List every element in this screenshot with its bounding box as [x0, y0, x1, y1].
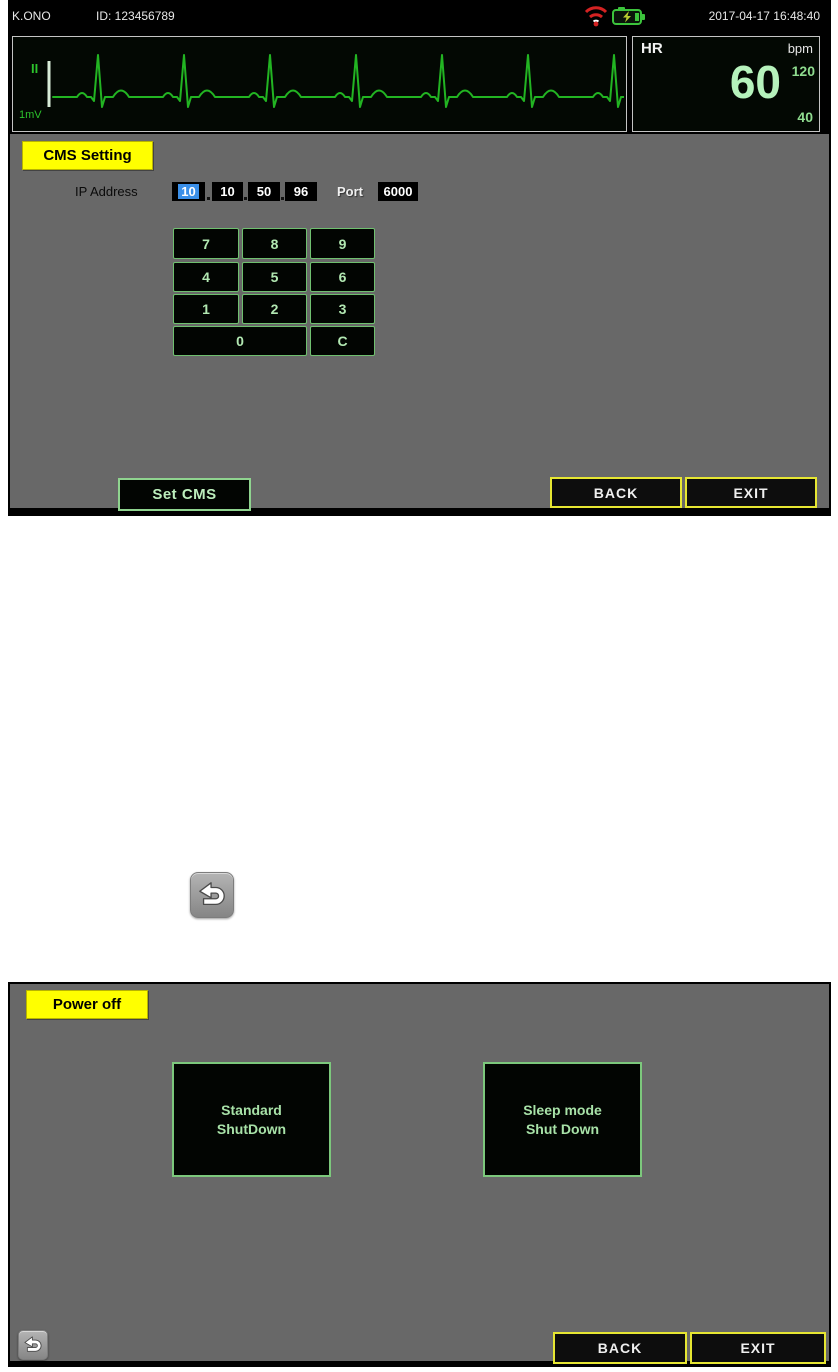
ecg-trace [13, 37, 624, 129]
ip-dot [244, 197, 247, 200]
keypad-key-6[interactable]: 6 [310, 262, 375, 292]
standard-shutdown-button[interactable]: Standard ShutDown [172, 1062, 331, 1177]
ip-octet-2[interactable]: 10 [212, 182, 243, 201]
ip-octet-4[interactable]: 96 [285, 182, 317, 201]
ip-dot [281, 197, 284, 200]
ecg-waveform-panel: II 1mV [12, 36, 627, 132]
hr-limit-high: 120 [792, 63, 815, 79]
keypad-key-8[interactable]: 8 [242, 228, 307, 259]
return-button[interactable] [190, 872, 234, 918]
patient-id: ID: 123456789 [96, 9, 175, 23]
sleep-shutdown-line2: Shut Down [526, 1120, 599, 1139]
keypad-key-7[interactable]: 7 [173, 228, 239, 259]
battery-icon [612, 6, 646, 26]
hr-unit: bpm [788, 41, 813, 56]
page-title: Power off [26, 990, 148, 1019]
keypad-key-4[interactable]: 4 [173, 262, 239, 292]
sleep-shutdown-line1: Sleep mode [523, 1101, 602, 1120]
keypad-key-0[interactable]: 0 [173, 326, 307, 356]
wifi-icon [584, 5, 608, 27]
keypad-key-3[interactable]: 3 [310, 294, 375, 324]
hr-value: 60 [730, 59, 781, 105]
return-arrow-icon [197, 880, 227, 910]
ip-address-label: IP Address [75, 184, 138, 199]
sleep-mode-shutdown-button[interactable]: Sleep mode Shut Down [483, 1062, 642, 1177]
back-button[interactable]: BACK [553, 1332, 687, 1364]
hr-label: HR [641, 40, 663, 57]
page-title: CMS Setting [22, 141, 153, 170]
datetime: 2017-04-17 16:48:40 [653, 9, 820, 23]
port-label: Port [337, 184, 363, 199]
return-arrow-icon [23, 1335, 43, 1355]
keypad-key-1[interactable]: 1 [173, 294, 239, 324]
keypad-key-5[interactable]: 5 [242, 262, 307, 292]
patient-name: K.ONO [12, 9, 51, 23]
hr-limit-low: 40 [797, 109, 813, 125]
hr-panel: HR bpm 60 120 40 [632, 36, 820, 132]
ip-octet-3[interactable]: 50 [248, 182, 280, 201]
keypad-key-clear[interactable]: C [310, 326, 375, 356]
ip-octet-4-value: 96 [294, 184, 308, 199]
monitor-screen-cms: K.ONO ID: 123456789 2017-04-17 16:48:40 [8, 0, 831, 516]
standard-shutdown-line2: ShutDown [217, 1120, 286, 1139]
return-button-small[interactable] [18, 1330, 48, 1360]
set-cms-button[interactable]: Set CMS [118, 478, 251, 511]
ip-octet-1-value: 10 [178, 184, 198, 199]
back-button[interactable]: BACK [550, 477, 682, 508]
status-bar: K.ONO ID: 123456789 2017-04-17 16:48:40 [8, 0, 831, 33]
keypad-key-2[interactable]: 2 [242, 294, 307, 324]
exit-button[interactable]: EXIT [690, 1332, 826, 1364]
power-off-area [10, 984, 829, 1361]
keypad-key-9[interactable]: 9 [310, 228, 375, 259]
monitor-screen-poweroff: Power off Standard ShutDown Sleep mode S… [8, 982, 831, 1367]
ip-octet-3-value: 50 [257, 184, 271, 199]
port-value: 6000 [384, 184, 413, 199]
standard-shutdown-line1: Standard [221, 1101, 282, 1120]
ip-octet-2-value: 10 [220, 184, 234, 199]
ip-octet-1[interactable]: 10 [172, 182, 205, 201]
exit-button[interactable]: EXIT [685, 477, 817, 508]
ip-dot [207, 197, 210, 200]
port-field[interactable]: 6000 [378, 182, 418, 201]
